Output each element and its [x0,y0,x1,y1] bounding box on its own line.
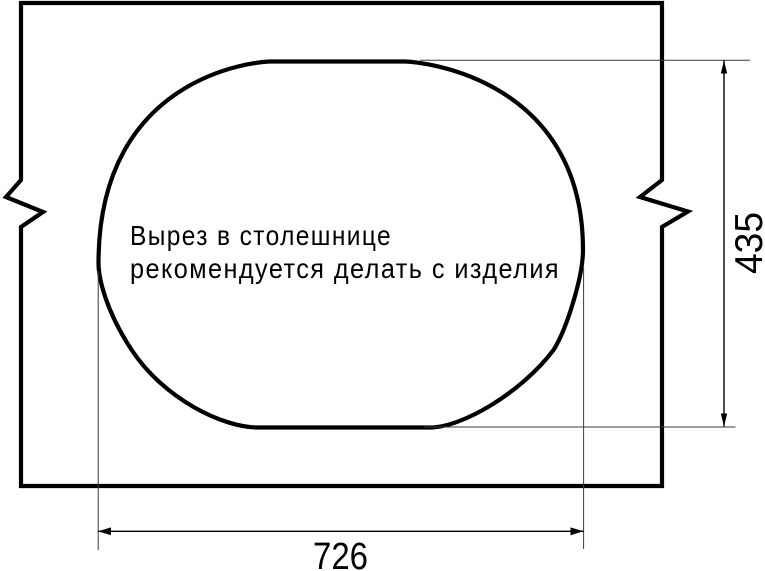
svg-text:Вырез в столешнице: Вырез в столешнице [130,220,392,251]
svg-text:рекомендуется делать с изделия: рекомендуется делать с изделия [130,253,560,284]
svg-text:726: 726 [313,536,368,571]
svg-text:435: 435 [728,212,765,274]
